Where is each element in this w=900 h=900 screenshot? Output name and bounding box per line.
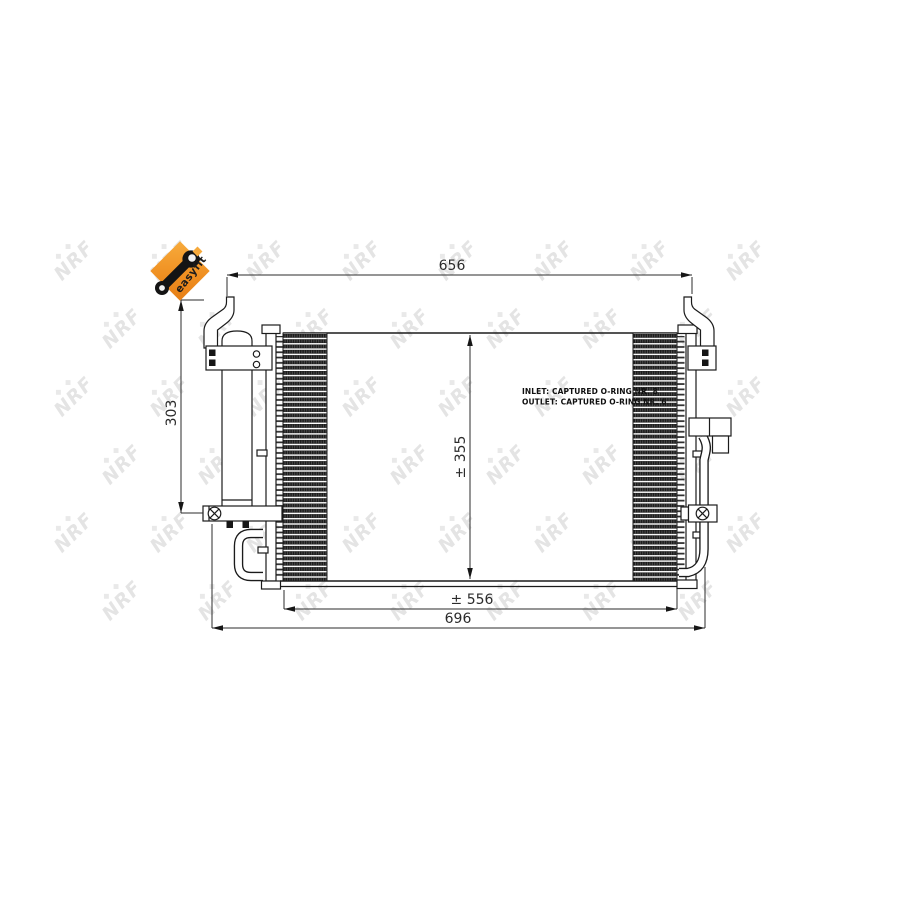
arrow-656-right xyxy=(681,272,692,278)
right-header-bottom-flange xyxy=(677,580,697,589)
arrow-303-bottom xyxy=(178,502,184,513)
left-bracket-hole-lower xyxy=(253,361,259,367)
dim-label-303: 303 xyxy=(164,400,180,427)
left-fin-teeth xyxy=(276,336,284,579)
fitting-notes: INLET: CAPTURED O-RING NR. 8 OUTLET: CAP… xyxy=(522,387,667,407)
condenser-core xyxy=(257,325,702,589)
right-bracket-slot-upper xyxy=(702,350,709,357)
dimension-303: 303 xyxy=(164,300,204,513)
dim-label-656: 656 xyxy=(439,258,466,274)
left-fin-pack xyxy=(283,333,327,581)
dimension-656: 656 xyxy=(227,258,692,296)
bottom-right-clamp xyxy=(681,505,717,522)
left-header-bottom-flange xyxy=(262,581,281,589)
dim-label-556: ± 556 xyxy=(451,592,494,608)
inlet-note: INLET: CAPTURED O-RING NR. 8 xyxy=(522,387,658,396)
left-side-tab-upper xyxy=(257,450,267,456)
bar-pin-left xyxy=(227,521,234,528)
arrow-696-left xyxy=(212,625,223,631)
arrow-355-bottom xyxy=(467,568,473,579)
left-header-top-cap xyxy=(262,325,280,334)
right-fin-teeth xyxy=(677,336,685,579)
arrow-556-left xyxy=(284,606,295,612)
dim-label-696: 696 xyxy=(445,611,472,627)
bottom-left-u-pipe xyxy=(239,534,264,577)
right-fin-pack xyxy=(633,333,677,581)
dim-label-355: ± 355 xyxy=(453,436,469,479)
right-header-top-cap xyxy=(678,325,697,334)
condenser-technical-drawing: 656 303 ± 355 ± 556 xyxy=(0,0,900,900)
clamp-ear xyxy=(681,507,689,520)
arrow-656-left xyxy=(227,272,238,278)
dimension-355: ± 355 xyxy=(453,335,473,579)
arrow-355-top xyxy=(467,335,473,346)
left-bracket-hole-upper xyxy=(253,351,259,357)
connection-stub xyxy=(713,436,729,453)
left-side-tab-lower xyxy=(258,547,268,553)
arrow-696-right xyxy=(694,625,705,631)
easyfit-logo: easyfit xyxy=(150,244,210,304)
left-bracket-slot-upper xyxy=(209,350,216,357)
outlet-note: OUTLET: CAPTURED O-RING NR. 6 xyxy=(522,398,667,407)
arrow-556-right xyxy=(666,606,677,612)
left-bracket-plate xyxy=(206,346,272,370)
dimension-556: ± 556 xyxy=(284,589,677,612)
right-bracket-slot-lower xyxy=(702,360,709,367)
left-bracket-slot-lower xyxy=(209,360,216,367)
bar-pin-right xyxy=(243,521,250,528)
condenser-diagram-page: ◆ ◆NRF◆ ◆NRF◆ ◆NRF◆ ◆NRF◆ ◆NRF◆ ◆NRF◆ ◆N… xyxy=(0,0,900,900)
